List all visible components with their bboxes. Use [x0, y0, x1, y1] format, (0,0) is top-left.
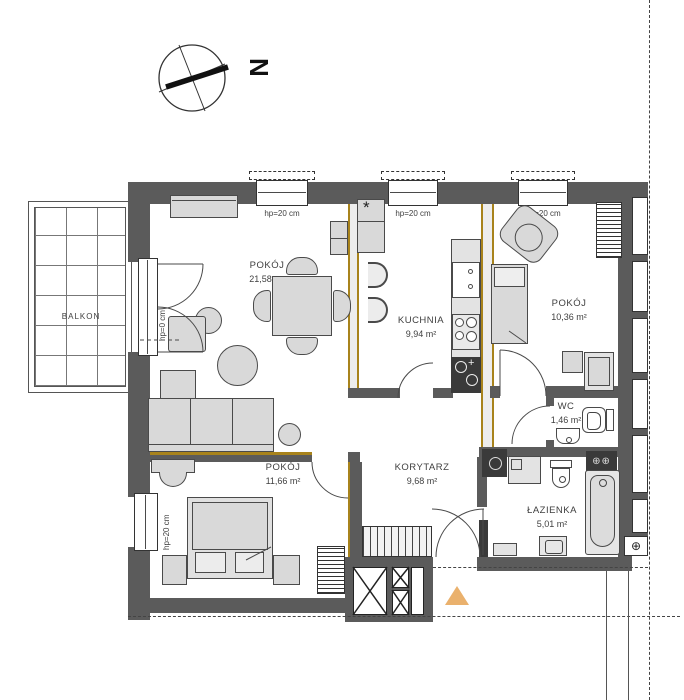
sideboard [170, 195, 238, 218]
stove-burner [455, 331, 464, 340]
radiator-room2 [596, 202, 622, 258]
window-living-mullion [258, 192, 306, 193]
neighbour-window [632, 318, 648, 373]
core-duct [411, 567, 424, 615]
wc-sink-drain [566, 437, 572, 443]
wc-name: WC [551, 401, 582, 414]
balcony-label: BALKON [62, 304, 100, 326]
window-lintel [249, 171, 315, 180]
kitchen-label: KUCHNIA 9,94 m² [398, 315, 444, 340]
window-kitchen-sill-label: hp=20 cm [395, 209, 430, 218]
wall-bottom-bedroom [128, 598, 362, 613]
window-kitchen [388, 180, 438, 206]
shaft-large [353, 567, 387, 615]
dresser [151, 459, 195, 473]
window-living [256, 180, 308, 206]
kitchen-door-swing [398, 363, 433, 398]
bath-toilet-drain [559, 476, 566, 483]
neighbour-window [632, 197, 648, 255]
wc-sink [556, 428, 580, 444]
hall-area: 9,68 m² [395, 475, 450, 487]
room2-area: 10,36 m² [551, 311, 587, 323]
bath-door-swing [436, 509, 484, 557]
window-room2 [518, 180, 568, 206]
floor-plan: BALKON ⊕ hp=20 cm hp=20 cm hp=20 cm hp=0… [0, 0, 684, 700]
stove-burner [466, 317, 477, 328]
living-name: POKÓJ [249, 260, 285, 273]
nightstand-left [162, 555, 187, 585]
boiler-marker: * [363, 198, 370, 218]
nightstand-right [273, 555, 300, 585]
bath-shaft-left [482, 449, 507, 477]
corridor-wall-line [606, 571, 607, 700]
bath-name: ŁAZIENKA [527, 505, 577, 518]
hall-wardrobe [362, 526, 432, 557]
stove-burner [455, 318, 464, 327]
wall-bottom-bath [477, 557, 632, 571]
window-bedroom-sill-label: hp=20 cm [162, 498, 171, 550]
wc-area: 1,46 m² [551, 414, 582, 426]
cabinet-handle [468, 269, 473, 274]
balcony-door-frame-line [147, 260, 148, 354]
kitchen-cabinet [452, 262, 480, 298]
entrance-threshold-line [433, 567, 648, 568]
dining-chair-left [253, 290, 271, 322]
neighbour-window [632, 499, 648, 533]
round-rug [217, 345, 258, 386]
wall-left-mid [128, 352, 150, 497]
sink-faucet: + [468, 357, 474, 369]
dining-chair-bottom [286, 337, 318, 355]
radiator-bedroom [317, 546, 345, 594]
stove-burner [466, 331, 477, 342]
site-line-bottom [128, 616, 680, 617]
window-bedroom [134, 493, 158, 551]
hall-name: KORYTARZ [395, 462, 450, 475]
bath-area: 5,01 m² [527, 518, 577, 530]
neighbour-window [632, 435, 648, 493]
kitchen-area: 9,94 m² [398, 328, 444, 340]
hall-label: KORYTARZ 9,68 m² [395, 462, 450, 487]
bath-toilet-bowl [552, 468, 570, 488]
compass-north-text: N [244, 58, 274, 77]
side-table [278, 423, 301, 446]
sofa-backrest-line [149, 444, 273, 445]
wc-toilet-inner [587, 412, 601, 430]
sink-bowl [455, 361, 467, 373]
window-kitchen-mullion [390, 192, 436, 193]
corridor-wall-line [628, 571, 629, 700]
room2-door-swing [500, 350, 546, 396]
wall-room2-bottom-stub [490, 386, 500, 398]
bar-stool [368, 297, 388, 323]
bar-stool [368, 262, 388, 288]
bed-single-pillow [494, 267, 525, 287]
entrance-door-swing [432, 509, 480, 557]
bedroom-area: 11,66 m² [266, 475, 301, 487]
bath-sink [539, 536, 567, 556]
washer-detail [511, 459, 522, 470]
window-lintel [381, 171, 445, 180]
wc-door-swing [512, 406, 550, 444]
shaft-small-bottom [392, 590, 409, 615]
bedroom-door-swing [312, 462, 348, 498]
kitchen-name: KUCHNIA [398, 315, 444, 328]
armchair-seat [509, 218, 548, 257]
bed-mattress [192, 502, 268, 550]
wall-left-upper [128, 204, 150, 262]
compass-icon [159, 45, 228, 111]
dresser-mirror-stool [159, 472, 187, 487]
bath-toilet-tank [550, 460, 572, 468]
bath-cabinet [493, 543, 517, 556]
bath-label: ŁAZIENKA 5,01 m² [527, 505, 577, 530]
sofa-seat-divider [232, 399, 233, 444]
cabinet-handle [468, 284, 473, 289]
sink-bowl [466, 374, 478, 386]
bathtub-drain [599, 479, 607, 487]
partition-corner-bedroom-door [348, 452, 360, 462]
window-lintel [511, 171, 575, 180]
window-bedroom-mullion [145, 495, 146, 549]
armchair-living [168, 316, 206, 352]
neighbour-window [632, 379, 648, 429]
entrance-marker [445, 586, 469, 605]
room2-label: POKÓJ 10,36 m² [551, 298, 587, 323]
bed-pillow [235, 552, 264, 573]
window-living-sill-label: hp=20 cm [264, 209, 299, 218]
bedroom-label: POKÓJ 11,66 m² [266, 462, 301, 487]
site-line-right [649, 0, 650, 700]
wc-toilet-bowl [582, 407, 606, 433]
wc-toilet-tank [606, 409, 614, 431]
desk-chair [562, 351, 583, 373]
bedroom-name: POKÓJ [266, 462, 301, 475]
balcony-name: BALKON [62, 312, 100, 321]
bath-shaft-bottom [479, 520, 488, 557]
neighbour-window [632, 261, 648, 312]
balcony-tiles [34, 207, 126, 387]
sofa-chaise [160, 370, 196, 400]
bath-sink-basin [545, 540, 563, 554]
shaft-pipe [489, 457, 502, 470]
wc-label: WC 1,46 m² [551, 401, 582, 426]
drain-access-box: ⊕ [624, 536, 648, 556]
dining-table [272, 276, 332, 336]
sofa-seat-divider [190, 399, 191, 444]
room2-name: POKÓJ [551, 298, 587, 311]
balcony-door-frame [138, 258, 158, 356]
shaft-small-top [392, 567, 409, 588]
kitchen-counter-left [357, 199, 385, 253]
window-room2-mullion [520, 192, 566, 193]
sideboard-back-line [172, 200, 236, 201]
balcony-door-height-label: hp=0 cm [158, 283, 167, 341]
desk-monitor [588, 357, 610, 386]
kitchen-counter-left-line [358, 221, 384, 222]
media-cabinet-shelf-line [331, 238, 347, 239]
wall-kitchen-bottom-left [348, 388, 400, 398]
washing-machine [508, 456, 541, 484]
wall-kitchen-bottom-right [433, 388, 453, 398]
bed-pillow [195, 552, 226, 573]
dining-chair-top [286, 257, 318, 275]
